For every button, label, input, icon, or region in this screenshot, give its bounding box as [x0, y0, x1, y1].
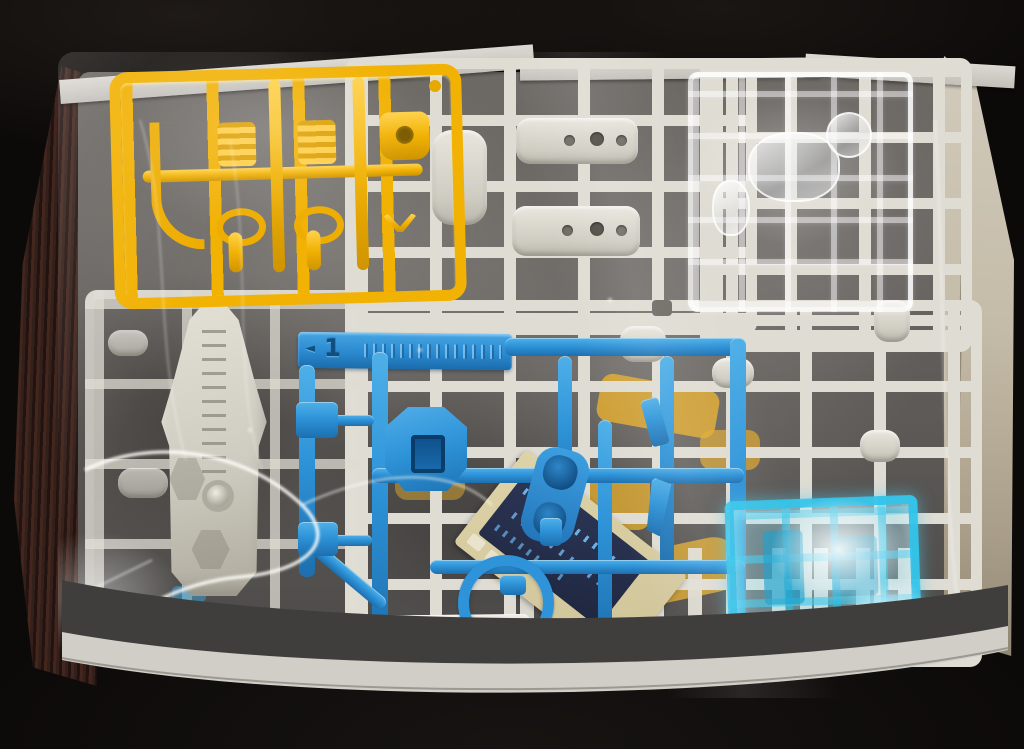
yellow-curved-part: [149, 121, 204, 250]
foot-detail: [539, 452, 581, 494]
clear-part: [712, 180, 750, 236]
tab-number: 1: [324, 334, 341, 362]
blue-runner-rail: [505, 338, 745, 356]
yellow-runner-rail: [352, 77, 369, 270]
clear-canopy-part: [748, 132, 840, 202]
clear-blue-runner: [724, 495, 922, 662]
clear-lens-part: [826, 112, 872, 158]
part-hole: [616, 225, 627, 236]
blue-ring-stem: [488, 624, 500, 650]
yellow-cylinder-part: [297, 120, 336, 165]
yellow-post-part: [228, 232, 243, 272]
yellow-cylinder-part: [217, 122, 256, 167]
blue-square-part: [298, 522, 338, 556]
white-joint-part: [860, 430, 900, 462]
part-hole: [590, 222, 604, 236]
yellow-crown-part: [379, 111, 430, 160]
dark-vent-part: [652, 300, 672, 316]
shield-hex-detail: [192, 530, 230, 569]
white-wishbone-part: [512, 206, 640, 256]
clear-blue-part: [762, 530, 805, 605]
blue-chest-part: [385, 407, 467, 491]
clear-blue-part: [831, 535, 879, 597]
part-hole: [590, 132, 604, 146]
part-hole: [616, 135, 627, 146]
yellow-post-part: [306, 230, 321, 270]
yellow-runner: [109, 63, 467, 309]
shield-circle-detail: [207, 485, 229, 507]
yellow-runner-rail: [268, 79, 285, 272]
part-hole: [562, 225, 573, 236]
blue-runner-tab: ◄ 1: [298, 332, 512, 370]
blue-ring-part: [458, 555, 554, 651]
blue-small-part: [540, 518, 562, 546]
part-hole: [395, 126, 413, 144]
copyright-mark: ©: [147, 624, 162, 642]
white-small-part: [118, 468, 168, 498]
blue-runner-rail: [660, 356, 674, 566]
blue-square-part: [296, 402, 338, 438]
shield-hex-detail: [169, 458, 205, 500]
yellow-vfin-part: [382, 214, 418, 233]
tab-arrow-icon: ◄: [305, 341, 315, 356]
part-hole: [564, 135, 575, 146]
white-wishbone-part: [516, 118, 638, 164]
blue-runner-rail: [598, 420, 612, 650]
photo-model-kit-box: © ◄ 1: [0, 0, 1024, 749]
chest-cockpit-detail: [411, 435, 445, 473]
white-small-part: [108, 330, 148, 356]
shield-panel-lines: [202, 329, 227, 473]
blue-small-part: [500, 575, 526, 595]
